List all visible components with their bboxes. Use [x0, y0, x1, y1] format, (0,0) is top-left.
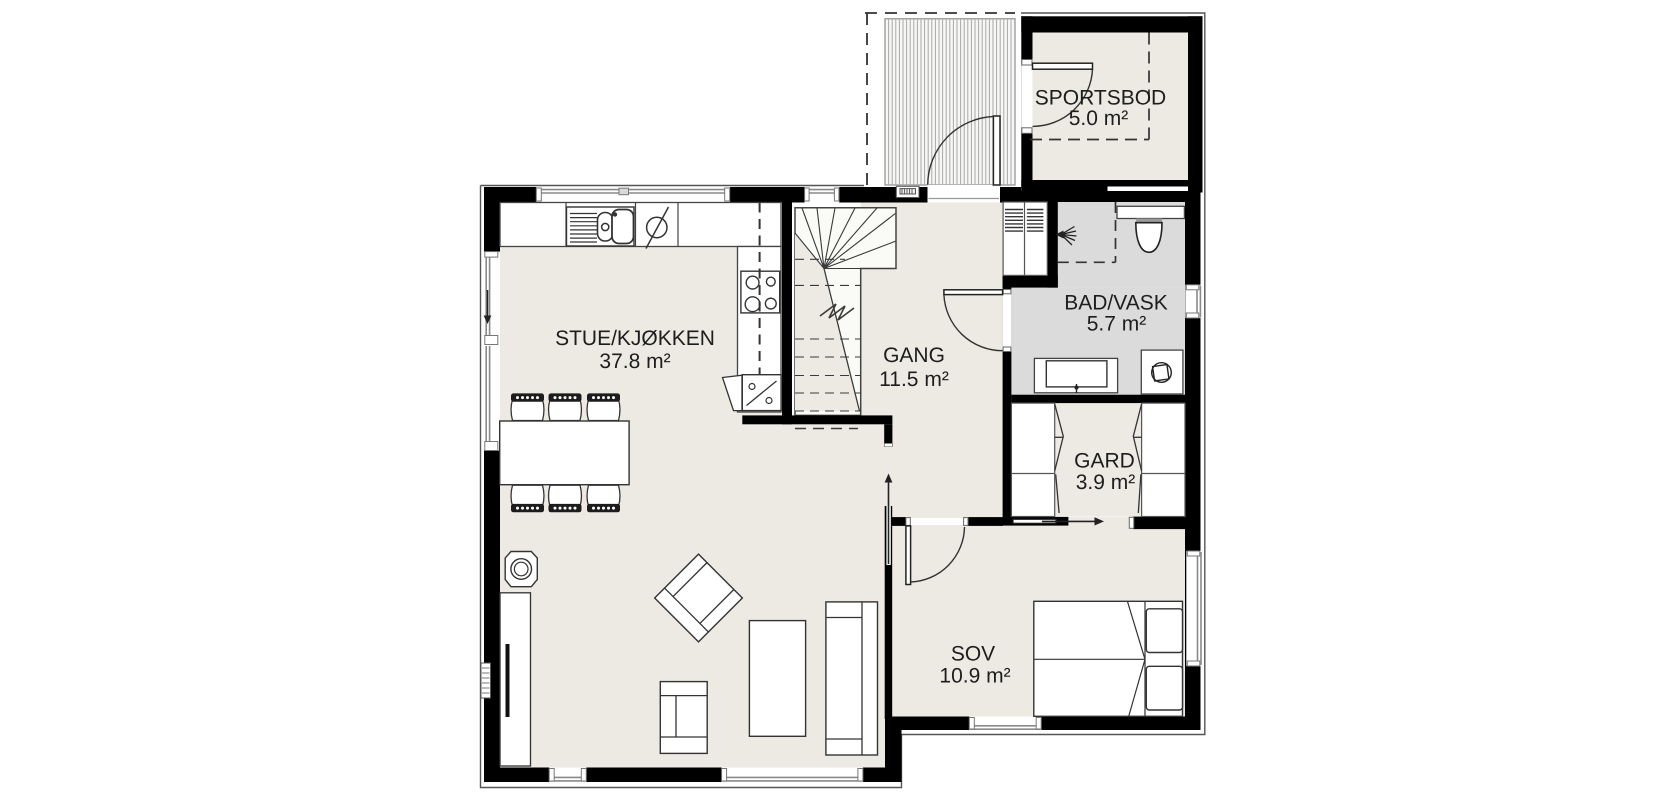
- svg-text:BAD/VASK: BAD/VASK: [1064, 292, 1167, 315]
- svg-text:10.9 m²: 10.9 m²: [939, 665, 1010, 688]
- svg-text:5.7 m²: 5.7 m²: [1087, 313, 1147, 336]
- svg-text:3.9 m²: 3.9 m²: [1076, 471, 1136, 494]
- svg-text:GANG: GANG: [883, 344, 945, 367]
- svg-text:11.5 m²: 11.5 m²: [879, 368, 949, 391]
- svg-text:37.8 m²: 37.8 m²: [599, 350, 670, 373]
- svg-text:SOV: SOV: [951, 643, 995, 666]
- svg-text:GARD: GARD: [1074, 450, 1135, 473]
- svg-text:STUE/KJØKKEN: STUE/KJØKKEN: [555, 327, 715, 350]
- svg-text:5.0 m²: 5.0 m²: [1069, 107, 1129, 130]
